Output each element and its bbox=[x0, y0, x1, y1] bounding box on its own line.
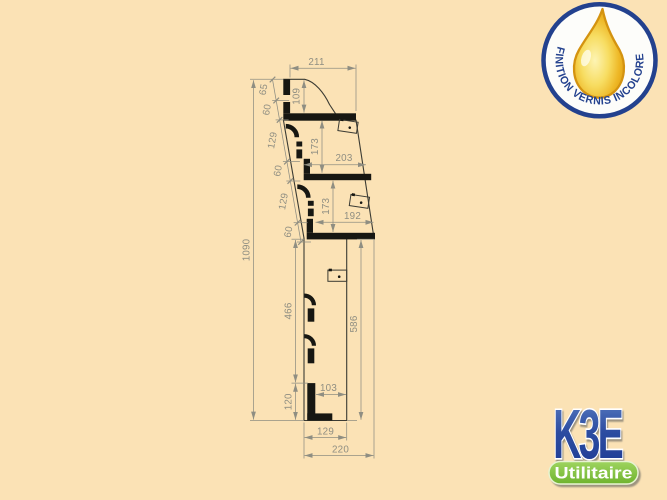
shelf2-upright bbox=[304, 159, 310, 174]
dim-foot-height: 120 bbox=[283, 393, 294, 410]
shelf2-bar bbox=[304, 174, 372, 180]
technical-drawing: 211 109 65 60 129 60 129 60 bbox=[0, 0, 667, 500]
dim-chain-129b: 129 bbox=[277, 192, 291, 211]
bay2-bar-bottom bbox=[308, 209, 314, 217]
bay2-bar-top bbox=[308, 201, 314, 206]
tagline-text: Utilitaire bbox=[555, 465, 633, 483]
screw-clip-3 bbox=[328, 269, 347, 282]
dim-body-depth: 129 bbox=[317, 427, 334, 438]
dim-chain-129a: 129 bbox=[266, 131, 280, 150]
shelf3-upright bbox=[307, 219, 313, 233]
finish-badge: FINITION VERNIS INCOLORE bbox=[544, 4, 656, 116]
dim-bay1-depth: 203 bbox=[336, 153, 353, 164]
bay1-corner-arc bbox=[286, 126, 297, 137]
body-bracket-a-bar bbox=[308, 308, 315, 321]
dim-chain-60b: 60 bbox=[272, 164, 285, 177]
left-slanted-edge bbox=[284, 121, 305, 239]
bay1-bar-top bbox=[296, 142, 302, 147]
dim-lower-front-height: 466 bbox=[283, 302, 294, 319]
dim-chain-60a: 60 bbox=[261, 103, 274, 116]
dim-top-width: 211 bbox=[308, 57, 324, 68]
shelf1-bar bbox=[283, 113, 356, 120]
body-bracket-a-arc bbox=[304, 296, 314, 306]
bay1-bar-bottom bbox=[296, 149, 302, 158]
dim-chain-65: 65 bbox=[258, 83, 271, 96]
bottom-l-foot bbox=[307, 413, 332, 420]
product-technical-sheet: 211 109 65 60 129 60 129 60 bbox=[0, 0, 667, 500]
screw-clip-2 bbox=[349, 193, 369, 208]
dim-bay2-height: 173 bbox=[321, 197, 332, 214]
dim-foot-clear-width: 103 bbox=[320, 383, 337, 394]
dim-overall-depth: 220 bbox=[332, 445, 349, 456]
dim-overall-height: 1090 bbox=[242, 238, 253, 261]
dim-bay1-height: 173 bbox=[310, 138, 321, 155]
body-bracket-b-bar bbox=[308, 348, 315, 363]
dim-chain-60c: 60 bbox=[283, 225, 296, 238]
dim-lower-back-height: 586 bbox=[349, 315, 360, 332]
dim-top-curve-height: 109 bbox=[292, 88, 303, 105]
body-bracket-b-arc bbox=[304, 336, 314, 346]
bay2-corner-arc bbox=[297, 187, 308, 198]
dim-bay2-depth: 192 bbox=[344, 211, 361, 222]
top-post-lower bbox=[283, 102, 290, 113]
top-post-upper bbox=[283, 79, 290, 95]
kbe-logo: K3E Utilitaire bbox=[549, 396, 638, 484]
shelf3-bar bbox=[307, 233, 375, 240]
